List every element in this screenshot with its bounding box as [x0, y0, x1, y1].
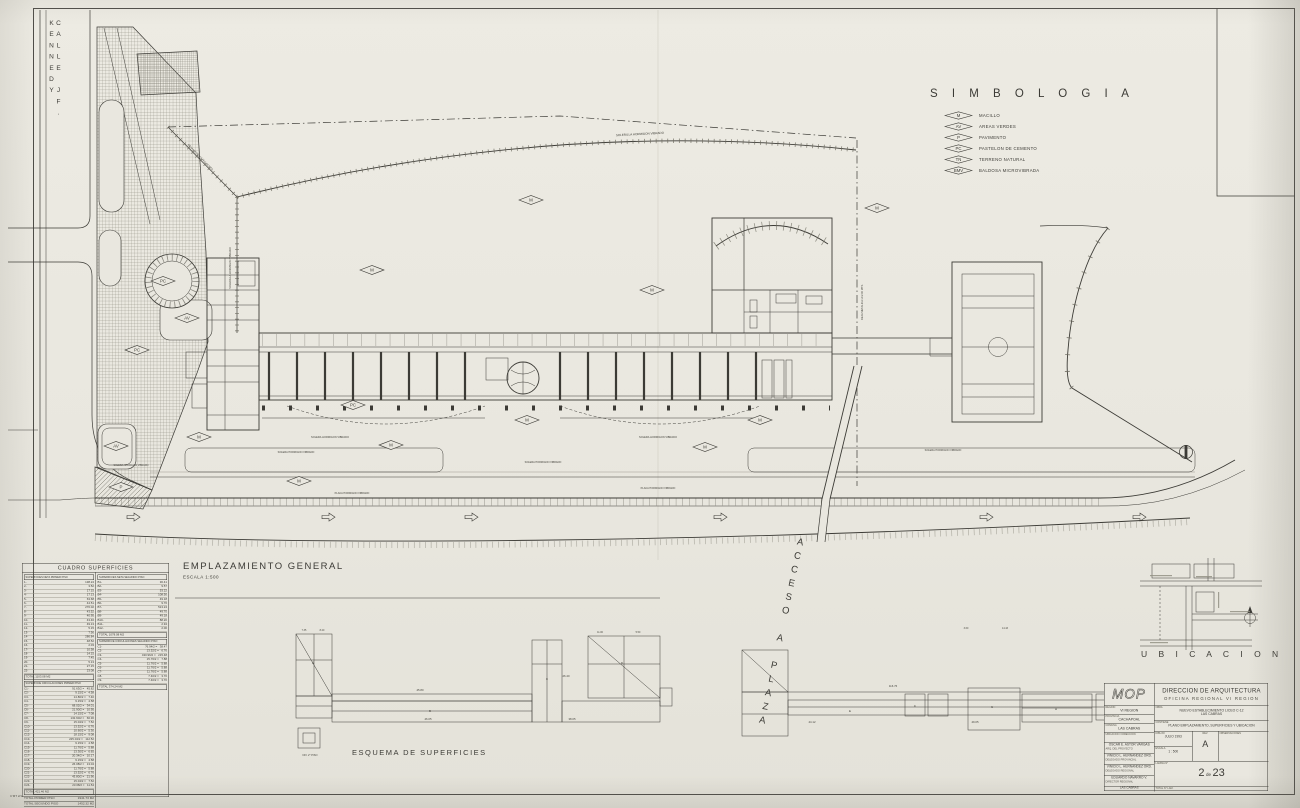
plan-annotation: 44.12	[809, 720, 816, 724]
ubicacion-map	[1140, 558, 1262, 650]
surface-schematic-left	[296, 634, 672, 748]
diamond-marker: M	[519, 196, 543, 205]
legend-item: M MACILLO	[944, 110, 1184, 121]
field-comuna: COMUNA LAS CABRAS	[1105, 724, 1155, 733]
field-boundaries	[168, 116, 857, 486]
svg-text:PC: PC	[134, 348, 140, 353]
field-contiene: CONTIENE PLANO EMPLAZAMIENTO, SUPERFICIE…	[1155, 721, 1269, 732]
legend-items: M MACILLO AV AREAS VERDES P PAVIMENTO PC…	[944, 110, 1184, 176]
legend-item-label: TERRENO NATURAL	[979, 157, 1025, 162]
field-footer: LAS CABRAS	[1105, 787, 1155, 792]
sports-court	[930, 262, 1042, 422]
signature-name: EDUARDO NAVARRO V.	[1105, 776, 1155, 780]
signature-role: DELEGADO REGIONAL	[1105, 769, 1155, 772]
ubicacion-title: U B I C A C I O N	[1141, 649, 1283, 659]
front-road	[95, 448, 1245, 545]
schematic-title: ESQUEMA DE SUPERFICIES	[352, 748, 487, 757]
signature-row: VINICIO L. HERNANDEZ ORD. DELEGADO PROVI…	[1105, 754, 1155, 765]
plan-annotation: SOLERA HORMIGON VIBRADO	[639, 435, 677, 439]
plan-annotation: 49.05	[972, 720, 979, 724]
diamond-marker: M	[865, 204, 889, 213]
diamond-marker: M	[693, 443, 717, 452]
signature-row: VINICIO L. HERNANDEZ ORD. DELEGADO REGIO…	[1105, 765, 1155, 776]
plan-annotation: 14.43	[1002, 627, 1009, 630]
field-ubicacion: UBICACION / DIRECCION	[1105, 733, 1155, 743]
plan-scale: ESCALA 1:500	[183, 575, 219, 580]
school-building	[186, 218, 952, 430]
svg-text:M: M	[389, 443, 393, 448]
sheet-number: 2	[1198, 766, 1204, 779]
diamond-marker: M	[640, 286, 664, 295]
svg-text:AV: AV	[956, 124, 962, 129]
table-row: 22-23.08	[24, 669, 94, 673]
plan-title-block: EMPLAZAMIENTO GENERAL ESCALA 1:500	[183, 561, 483, 590]
org-office: OFICINA REGIONAL VI REGION	[1155, 696, 1269, 701]
plan-annotation: SOLERA HORMIGON VIBRADO	[311, 435, 349, 439]
mop-logo-cell: MOP	[1105, 684, 1155, 706]
table-total: TOTAL 421.46 M2	[24, 789, 94, 795]
surface-table-col-2: SUPERFICIES NETA SEGUNDO PISOB1-30.41B2-…	[96, 573, 169, 808]
arrow-right-icon	[980, 513, 993, 521]
surface-table-col-1: SUPERFICIES NETA PRIMER PISO1-138.242-3.…	[23, 573, 96, 808]
diamond-marker: M	[287, 477, 311, 486]
north-compass-icon	[1245, 606, 1256, 627]
table-header: SUPERFICIE CIRCULACIONES SEGUNDO PISO	[98, 639, 168, 645]
mop-logo: MOP	[1112, 687, 1146, 702]
signature-name: VINICIO L. HERNANDEZ ORD.	[1105, 765, 1155, 769]
field-total-laminas: TOTAL N° LAM.	[1155, 787, 1269, 792]
street-name-marks	[1150, 575, 1250, 643]
field-provincia: PROVINCIA CACHAPOAL	[1105, 715, 1155, 724]
plan-annotation: 11.00	[597, 631, 603, 634]
legend-diamond-icon: M	[944, 111, 973, 120]
legend-item: TN TERRENO NATURAL	[944, 154, 1184, 165]
plan-annotation: 38.05	[569, 717, 576, 721]
svg-text:M: M	[650, 288, 654, 293]
plan-annotation: PLACA HORMIGON VIBRADO	[641, 487, 676, 490]
diamond-marker: M	[360, 266, 384, 275]
table-row: B12-2.00	[98, 627, 168, 631]
plan-annotation: SOLERILLA HORMIGON VIBRADO	[228, 247, 232, 289]
svg-text:M: M	[525, 418, 529, 423]
signature-role: DIRECTOR REGIONAL	[1105, 780, 1155, 783]
surface-schematic-right	[742, 650, 1120, 736]
svg-text:M: M	[758, 418, 762, 423]
plan-annotation: 3.60	[964, 627, 969, 630]
drawing-sheet: PC PC AV AV P M M M M M PC M M M M M SOL…	[0, 0, 1300, 808]
title-block: MOP DIRECCION DE ARQUITECTURA OFICINA RE…	[1104, 683, 1268, 791]
plan-annotation: A	[312, 661, 315, 665]
legend-item: AV AREAS VERDES	[944, 121, 1184, 132]
legend-title: S I M B O L O G I A	[930, 88, 1210, 100]
svg-text:M: M	[957, 113, 961, 118]
svg-text:AV: AV	[113, 444, 119, 449]
plan-annotation: C	[546, 677, 549, 681]
svg-text:TN: TN	[956, 157, 962, 162]
svg-text:AV: AV	[184, 316, 190, 321]
table-total: TOTAL 1078.08 M2	[98, 632, 168, 638]
plan-annotation: B	[429, 709, 431, 713]
arrow-right-icon	[322, 513, 335, 521]
arrow-right-icon	[714, 513, 727, 521]
plan-annotation: 26.40	[563, 674, 570, 678]
field-obra: OBRA NUEVO ESTABLECIMIENTO LICEO C-12 LA…	[1155, 706, 1269, 721]
plan-annotation: 8.20	[320, 629, 325, 632]
table-header: SUPERFICIES NETA SEGUNDO PISO	[98, 575, 168, 581]
east-boundary-fence	[1040, 225, 1193, 462]
plan-annotation: E	[849, 709, 851, 713]
plan-annotation: SOLERA HORMIGON VIBRADO	[925, 449, 962, 452]
field-lamina: LAMINA N° 2de23	[1155, 762, 1269, 787]
plan-annotation: PLACA HORMIGON VIBRADO	[335, 492, 370, 495]
field-revision: REV. A	[1193, 732, 1219, 762]
plan-annotation: 5.50	[636, 631, 641, 634]
svg-text:PC: PC	[956, 146, 962, 151]
plan-title: EMPLAZAMIENTO GENERAL	[183, 561, 483, 572]
plan-annotation: D	[621, 661, 624, 665]
plan-annotation: H	[1055, 707, 1057, 711]
svg-text:M: M	[703, 445, 707, 450]
legend-item-label: PAVIMENTO	[979, 135, 1006, 140]
surface-code-markers: PC PC AV AV P M M M M M PC M M M M M	[104, 196, 889, 492]
table-header: SUPERFICIES NETA PRIMER PISO	[24, 575, 94, 581]
legend-item: PC PASTELON DE CEMENTO	[944, 143, 1184, 154]
plan-annotation: REJA METALICA H=2.00 MTS.	[860, 284, 864, 320]
legend-diamond-icon: TN	[944, 155, 973, 164]
surface-table-title: CUADRO SUPERFICIES	[23, 564, 169, 573]
svg-text:M: M	[875, 206, 879, 211]
arrow-right-icon	[1133, 513, 1146, 521]
sheet-total: 23	[1212, 766, 1224, 779]
plaza-access-path	[817, 366, 862, 542]
legend-item-label: PASTELON DE CEMENTO	[979, 146, 1037, 151]
surface-table: CUADRO SUPERFICIES SUPERFICIES NETA PRIM…	[22, 563, 169, 797]
org-header: DIRECCION DE ARQUITECTURA OFICINA REGION…	[1155, 684, 1269, 706]
signature-role: DELEGADO PROVINCIAL	[1105, 758, 1155, 761]
field-dibujo: DIBUJO JULIO 1993	[1155, 732, 1193, 747]
svg-text:PC: PC	[160, 279, 166, 284]
plan-annotation: 45.80	[417, 688, 424, 692]
plan-annotation: SOLERA HORMIGON VIBRADO	[113, 464, 148, 467]
plan-annotation: 7.35	[302, 629, 307, 632]
signature-name: VINICIO L. HERNANDEZ ORD.	[1105, 754, 1155, 758]
arrow-right-icon	[127, 513, 140, 521]
legend-diamond-icon: PC	[944, 144, 973, 153]
svg-text:P: P	[957, 135, 960, 140]
signature-role: ARQ. DEL PROYECTO	[1105, 747, 1155, 750]
signature-rows: OSCAR E. ASTOR VARGAS ARQ. DEL PROYECTO …	[1105, 743, 1155, 787]
svg-text:M: M	[529, 198, 533, 203]
street-label-kennedy: CALLE JF. KENNEDY	[48, 20, 62, 210]
svg-text:M: M	[197, 435, 201, 440]
table-total: TOTAL 374.24 M2	[98, 684, 168, 690]
signature-row: EDUARDO NAVARRO V. DIRECTOR REGIONAL	[1105, 776, 1155, 787]
legend-item-label: AREAS VERDES	[979, 124, 1016, 129]
diamond-marker: M	[515, 416, 539, 425]
svg-text:BMV: BMV	[954, 168, 963, 173]
legend-diamond-icon: BMV	[944, 166, 973, 175]
field-observaciones: OBSERVACIONES	[1219, 732, 1269, 762]
table-total: TOTAL 1103.08 M2	[24, 674, 94, 680]
legend-simbologia: S I M B O L O G I A M MACILLO AV AREAS V…	[930, 88, 1210, 242]
plan-annotation: SOLERILLA HORMIGON VIBRADO	[616, 131, 665, 138]
legend-item-label: BALDOSA MICROVIBRADA	[979, 168, 1039, 173]
plan-annotation: 116.76	[889, 684, 898, 688]
table-row: C24-23.08/2 =11.54	[24, 784, 94, 788]
field-region: REGION VI REGION	[1105, 706, 1155, 715]
svg-text:PC: PC	[350, 403, 356, 408]
signature-row: OSCAR E. ASTOR VARGAS ARQ. DEL PROYECTO	[1105, 743, 1155, 754]
plan-annotation: C'MT 2/1	[10, 794, 22, 798]
plan-annotation: NIV. 2° PISO	[303, 753, 318, 757]
table-header: SUPERFICIE CIRCULACIONES PRIMER PISO	[24, 681, 94, 687]
table-row: C9-7.40/2 =3.70	[98, 679, 168, 683]
diamond-marker: M	[748, 416, 772, 425]
legend-diamond-icon: AV	[944, 122, 973, 131]
org-name: DIRECCION DE ARQUITECTURA	[1155, 687, 1269, 694]
signature-name: OSCAR E. ASTOR VARGAS	[1105, 743, 1155, 747]
plan-annotation: SOLERA HORMIGON VIBRADO	[278, 451, 315, 454]
traffic-arrows	[127, 513, 1146, 521]
arrow-right-icon	[465, 513, 478, 521]
legend-item: BMV BALDOSA MICROVIBRADA	[944, 165, 1184, 176]
svg-text:M: M	[297, 479, 301, 484]
plan-annotation: F	[914, 704, 916, 708]
plan-annotation: SOLERA HORMIGON VIBRADO	[525, 461, 562, 464]
plan-annotation: 46.05	[425, 717, 432, 721]
field-escala: ESCALA 1 : 500	[1155, 747, 1193, 762]
legend-diamond-icon: P	[944, 133, 973, 142]
legend-item-label: MACILLO	[979, 113, 1000, 118]
svg-text:M: M	[370, 268, 374, 273]
diamond-marker: M	[187, 433, 211, 442]
legend-item: P PAVIMENTO	[944, 132, 1184, 143]
svg-text:P: P	[120, 485, 123, 490]
